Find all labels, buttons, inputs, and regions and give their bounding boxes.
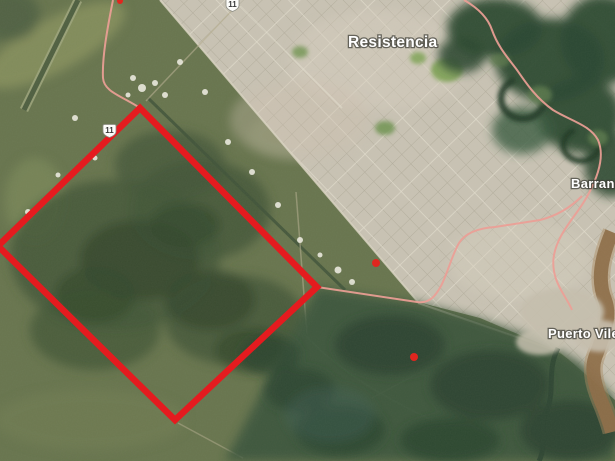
route-number: 11 — [105, 126, 114, 135]
town-label-puerto-vilelas: Puerto Vilel — [548, 326, 615, 341]
city-label-resistencia: Resistencia — [348, 34, 438, 51]
poi-marker[interactable] — [372, 259, 380, 267]
imagery-noise — [0, 0, 615, 461]
poi-marker[interactable] — [410, 353, 418, 361]
town-label-barranqueras: Barranqu — [571, 176, 615, 191]
route-number: 11 — [228, 0, 237, 9]
map-viewport[interactable]: 11 11 Resistencia Barranqu Puerto Vilel — [0, 0, 615, 461]
satellite-map[interactable]: 11 11 Resistencia Barranqu Puerto Vilel — [0, 0, 615, 461]
